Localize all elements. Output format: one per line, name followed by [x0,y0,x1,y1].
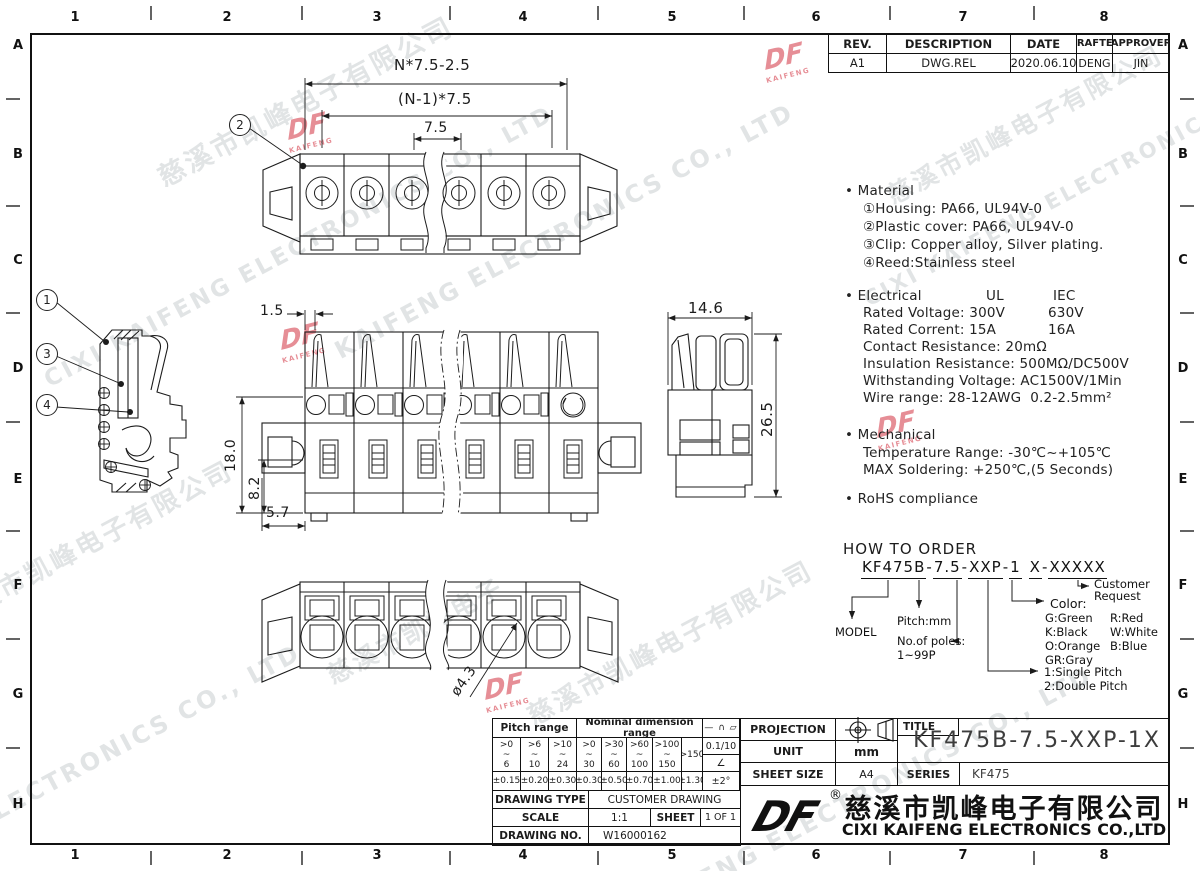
order-model-label: MODEL [835,625,877,639]
dim-height-26-5: 26.5 [758,402,776,437]
callout-bubble-4: 4 [36,394,58,416]
zone-label: C [1172,253,1194,268]
electrical-title: • Electrical [845,288,922,304]
projection-symbol-cell [835,718,898,741]
zone-label: 5 [661,848,683,863]
order-pitchtype-label: 1:Single Pitch [1044,665,1122,679]
zone-label: B [7,147,29,162]
series-value: KF475 [959,762,1170,786]
unit-label: UNIT [740,740,836,763]
series-label: SERIES [897,762,960,786]
zone-label: F [7,578,29,593]
zone-label: A [1172,38,1194,53]
order-code-model: KF475B [861,558,926,579]
rev-value: DENG [1076,53,1113,73]
unit-value: mm [835,740,898,763]
geometry-symbols: — ∩ ▱ [702,718,740,738]
sheet-size-label: SHEET SIZE [740,762,836,786]
zone-label: E [7,472,29,487]
angle-tolerance: ±2° [702,771,740,791]
angle-symbol: ∠ [702,754,740,772]
rev-value: JIN [1112,53,1170,73]
sheet-size-value: A4 [835,762,898,786]
zone-label: D [1172,361,1194,376]
projection-label: PROJECTION [740,718,836,741]
sheet-label: SHEET [650,808,701,827]
engineering-drawing-sheet: 慈溪市凯峰电子有限公司 CIXI KAIFENG ELECTRONICS CO.… [0,0,1200,871]
zone-label: H [7,797,29,812]
zone-label: E [1172,472,1194,487]
dim-pitch-span: (N-1)*7.5 [398,90,472,108]
dim-width-14-6: 14.6 [688,299,723,317]
drawing-type-value: CUSTOMER DRAWING [588,790,741,809]
dim-height-8-2: 8.2 [247,476,263,500]
company-logo: DF [747,792,822,841]
rev-value: A1 [828,53,887,73]
zone-label: 3 [366,10,388,25]
zone-label: 8 [1093,10,1115,25]
order-code-color: X [1029,558,1042,579]
callout-bubble-1: 1 [36,289,58,311]
rev-header: APPROVER [1112,33,1170,54]
order-poles-label: No.of poles: [897,634,965,648]
zone-label: H [1172,797,1194,812]
zone-label: 4 [512,848,534,863]
zone-label: 6 [805,848,827,863]
callout-bubble-2: 2 [229,114,251,136]
zone-label: 2 [216,10,238,25]
scale-label: SCALE [492,808,589,827]
callout-bubble-3: 3 [36,343,58,365]
zone-label: 7 [952,848,974,863]
rev-header: DRAFTER [1076,33,1113,54]
zone-label: 6 [805,10,827,25]
drawing-no-value: W16000162 [588,826,741,846]
zone-label: 1 [64,848,86,863]
drawing-no-label: DRAWING NO. [492,826,589,846]
zone-label: 3 [366,848,388,863]
order-code: KF475B-7.5-XXP-1X-XXXXX [861,558,1107,579]
rev-value: DWG.REL [886,53,1011,73]
order-pitch-label: Pitch:mm [897,614,951,628]
zone-label: C [7,253,29,268]
material-title: • Material [845,183,914,199]
rev-value: 2020.06.10 [1010,53,1077,73]
how-to-order-title: HOW TO ORDER [843,540,977,558]
zone-label: 5 [661,10,683,25]
dim-lever-offset: 1.5 [260,303,284,319]
company-block: DF ® 慈溪市凯峰电子有限公司 CIXI KAIFENG ELECTRONIC… [740,785,1170,845]
order-code-poles: XXP [968,558,1003,579]
scale-value: 1:1 [588,808,651,827]
order-code-custom: XXXXX [1048,558,1106,579]
sheet-value: 1 OF 1 [700,808,741,827]
zone-label: G [1172,687,1194,702]
flatness-tolerance: 0.1/10 [702,737,740,755]
nominal-range-header: Nominal dimension range [576,718,703,738]
zone-label: 4 [512,10,534,25]
order-code-pitchtype: 1 [1009,558,1022,579]
pitch-range-header: Pitch range [492,718,577,738]
zone-label: 1 [64,10,86,25]
order-code-pitch: 7.5 [933,558,962,579]
zone-label: 7 [952,10,974,25]
order-color-label: Color: [1050,596,1087,611]
notes-rohs: • RoHS compliance [845,491,978,507]
dim-overall-length: N*7.5-2.5 [394,56,470,74]
rev-header: REV. [828,33,887,54]
rev-header: DESCRIPTION [886,33,1011,54]
rev-header: DATE [1010,33,1077,54]
mechanical-title: • Mechanical [845,427,936,443]
company-name-en: CIXI KAIFENG ELECTRONICS CO.,LTD [841,820,1167,839]
dim-pitch: 7.5 [424,120,448,136]
zone-label: G [7,687,29,702]
zone-label: B [1172,147,1194,162]
dim-flange-5-7: 5.7 [266,505,290,521]
zone-label: D [7,361,29,376]
zone-label: 8 [1093,848,1115,863]
zone-label: A [7,38,29,53]
dim-height-18: 18.0 [223,439,239,472]
drawing-type-label: DRAWING TYPE [492,790,589,809]
zone-label: 2 [216,848,238,863]
zone-label: F [1172,578,1194,593]
drawing-title: KF475B-7.5-XXP-1X [912,728,1162,753]
